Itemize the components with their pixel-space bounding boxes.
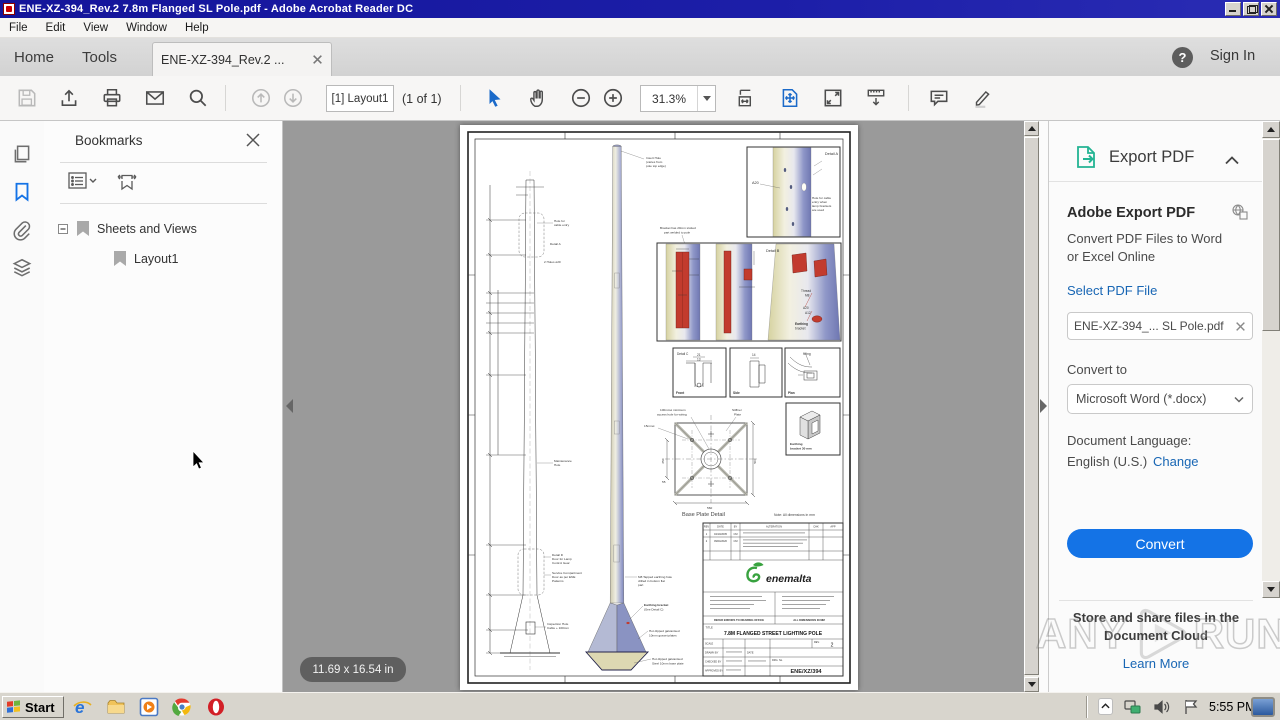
bookmark-label: Layout1 (134, 252, 178, 266)
svg-text:APPROVED BY: APPROVED BY (705, 670, 723, 673)
detail-b-box: Detail B Thread M8 A20 A12 Earthing brac… (657, 243, 841, 341)
svg-text:Earthing: Earthing (790, 442, 803, 446)
svg-text:500: 500 (753, 458, 757, 463)
svg-text:cable entry: cable entry (554, 223, 570, 227)
start-label: Start (25, 700, 55, 715)
menu-file[interactable]: File (0, 20, 37, 36)
scroll-up-icon[interactable] (1262, 121, 1280, 138)
svg-text:Cable + 100mm: Cable + 100mm (547, 626, 569, 630)
attachments-icon[interactable] (11, 219, 33, 241)
fullscreen-icon[interactable] (822, 87, 844, 109)
mouse-cursor (192, 451, 205, 470)
svg-text:Hole: Hole (554, 463, 561, 467)
dimensions-note: Note: All dimensions in mm (774, 513, 815, 517)
media-player-icon[interactable] (139, 697, 159, 717)
svg-text:Side: Side (733, 391, 740, 395)
bookmark-icon (76, 221, 90, 237)
export-pdf-header[interactable]: Export PDF (1109, 148, 1194, 167)
page-count-label: (1 of 1) (402, 85, 442, 112)
tab-document[interactable]: ENE-XZ-394_Rev.2 ... (152, 42, 332, 76)
convert-to-label: Convert to (1067, 362, 1127, 377)
menu-edit[interactable]: Edit (37, 20, 75, 36)
save-icon[interactable] (16, 87, 38, 109)
store-share-line1: Store and share files in the (1049, 610, 1263, 625)
svg-text:ALL DIMENSIONS IN MM: ALL DIMENSIONS IN MM (793, 618, 825, 622)
minimize-button[interactable] (1225, 2, 1241, 16)
convert-button[interactable]: Convert (1067, 529, 1253, 558)
svg-text:bracket: bracket (795, 327, 806, 331)
chevron-down-icon (1234, 396, 1244, 403)
acrobat-app-icon (3, 3, 15, 15)
detail-a-box: Detail A A20 Hole for cable entry when l… (747, 147, 840, 237)
window-title: ENE-XZ-394_Rev.2 7.8m Flanged SL Pole.pd… (19, 3, 413, 15)
language-value: English (U.S.) (1067, 454, 1147, 469)
document-language-label: Document Language: (1067, 433, 1191, 448)
collapse-left-panel-icon[interactable] (286, 399, 293, 413)
zoom-caret-icon[interactable] (697, 86, 715, 111)
page-size-tooltip: 11.69 x 16.54 in (300, 657, 406, 682)
svg-text:Thread: Thread (801, 289, 811, 293)
close-button[interactable] (1261, 2, 1277, 16)
tray-collapse-icon[interactable] (1098, 698, 1113, 715)
internet-explorer-icon[interactable]: e (72, 697, 92, 717)
windows-flag-icon (7, 700, 21, 713)
opera-icon[interactable] (206, 697, 226, 717)
scroll-up-icon[interactable] (1024, 121, 1039, 136)
restore-button[interactable] (1243, 2, 1259, 16)
selected-file-chip[interactable]: ENE-XZ-394_... SL Pole.pdf (1067, 312, 1253, 340)
export-pdf-panel: Export PDF Adobe Export PDF Convert PDF … (1048, 121, 1262, 692)
svg-text:fitting: fitting (803, 352, 811, 356)
bookmarks-panel: Bookmarks Sheets and Views (44, 121, 283, 692)
svg-text:Patterns: Patterns (552, 579, 564, 583)
tab-home[interactable]: Home (4, 38, 64, 76)
export-description-line1: Convert PDF Files to Word (1067, 231, 1222, 246)
panel-scrollbar[interactable] (1262, 121, 1280, 598)
svg-text:09/04/2020: 09/04/2020 (714, 539, 728, 543)
svg-text:A20: A20 (752, 181, 759, 185)
bookmark-item-sheets-and-views[interactable]: Sheets and Views (44, 217, 283, 241)
zoom-level-value: 31.3% (641, 92, 697, 106)
svg-text:21: 21 (697, 353, 701, 357)
menu-view[interactable]: View (74, 20, 117, 36)
svg-text:Detail C: Detail C (677, 352, 689, 356)
svg-text:CHK: CHK (813, 525, 819, 529)
main-area: Bookmarks Sheets and Views (0, 121, 1280, 692)
svg-text:13: 13 (697, 358, 701, 362)
svg-text:10mm gusset plates: 10mm gusset plates (649, 634, 677, 638)
highlight-pen-icon[interactable] (971, 87, 993, 109)
previous-page-icon[interactable] (250, 87, 272, 109)
share-upload-icon[interactable] (58, 87, 80, 109)
chrome-icon[interactable] (172, 697, 192, 717)
menu-bar: File Edit View Window Help (0, 18, 1280, 38)
panel-scroll-gutter (1262, 598, 1280, 692)
svg-text:Detail A: Detail A (825, 152, 839, 156)
svg-text:APP: APP (830, 525, 835, 529)
zoom-out-icon[interactable] (570, 87, 592, 109)
svg-text:DRAWN BY: DRAWN BY (705, 652, 719, 655)
comment-icon[interactable] (928, 87, 950, 109)
svg-text:Front: Front (676, 391, 685, 395)
svg-text:DRG. No.: DRG. No. (772, 659, 783, 662)
export-pdf-icon (1073, 144, 1099, 170)
drawing-number: ENE/XZ/394 (790, 669, 822, 675)
tab-tools[interactable]: Tools (72, 38, 127, 76)
tab-document-label: ENE-XZ-394_Rev.2 ... (161, 53, 312, 67)
svg-text:are used: are used (812, 208, 824, 212)
bookmark-icon (113, 251, 127, 267)
main-toolbar: [1] Layout1 (1 of 1) 31.3% (0, 76, 1280, 121)
drawing-title: 7.8M FLANGED STREET LIGHTING POLE (724, 631, 823, 637)
svg-text:pole top edge): pole top edge) (646, 164, 666, 168)
next-page-icon[interactable] (282, 87, 304, 109)
svg-text:560: 560 (707, 506, 712, 510)
pdf-page[interactable]: Hole for cable entry Detail A 2 Holes ⌀2… (460, 125, 858, 690)
svg-text:REV: REV (704, 525, 710, 529)
svg-text:Stiffner: Stiffner (732, 408, 742, 412)
bookmark-options-icon[interactable] (68, 171, 98, 196)
export-description-line2: or Excel Online (1067, 249, 1155, 264)
earthing-bracket-box: Earthing bracket 30 mm (786, 403, 840, 455)
monitor-tray-icon[interactable] (1251, 697, 1275, 717)
new-bookmark-icon[interactable] (114, 171, 140, 198)
scroll-down-icon[interactable] (1262, 581, 1280, 598)
svg-text:REFER ERRORS TO DRAWING OFFICE: REFER ERRORS TO DRAWING OFFICE (714, 618, 764, 622)
svg-text:part welded to pole: part welded to pole (664, 231, 690, 235)
change-language-link[interactable]: Change (1153, 454, 1199, 469)
svg-text:Bracket has 20mm slotted: Bracket has 20mm slotted (660, 226, 696, 230)
svg-text:CM: CM (733, 539, 737, 543)
menu-window[interactable]: Window (117, 20, 176, 36)
svg-text:bracket 30 mm: bracket 30 mm (790, 447, 812, 451)
bookmarks-panel-icon[interactable] (11, 181, 33, 203)
fit-width-icon[interactable] (736, 87, 758, 109)
svg-text:enemalta: enemalta (766, 573, 812, 585)
svg-text:A12: A12 (805, 311, 811, 315)
bookmark-item-layout1[interactable]: Layout1 (44, 247, 283, 271)
window-titlebar[interactable]: ENE-XZ-394_Rev.2 7.8m Flanged SL Pole.pd… (0, 0, 1280, 18)
start-button[interactable]: Start (2, 696, 64, 718)
select-pdf-file-link[interactable]: Select PDF File (1067, 283, 1157, 298)
svg-text:Hot dipped galvanised: Hot dipped galvanised (652, 657, 683, 661)
layers-icon[interactable] (11, 257, 33, 279)
svg-text:Earthing bracket: Earthing bracket (644, 603, 668, 607)
svg-text:ALTERATION: ALTERATION (766, 525, 782, 529)
right-panel-edge (1039, 121, 1048, 692)
help-icon[interactable]: ? (1172, 47, 1193, 68)
svg-text:Plate: Plate (734, 413, 741, 417)
taskbar: Start e 5:55 PM (0, 692, 1280, 720)
selected-file-name: ENE-XZ-394_... SL Pole.pdf (1074, 319, 1235, 333)
svg-text:A20: A20 (803, 306, 809, 310)
svg-text:M8: M8 (805, 294, 810, 298)
clock[interactable]: 5:55 PM (1209, 700, 1256, 714)
svg-text:e: e (75, 698, 84, 717)
document-area[interactable]: Hole for cable entry Detail A 2 Holes ⌀2… (283, 121, 1039, 692)
collapse-box-icon[interactable] (58, 224, 68, 234)
svg-text:250: 250 (661, 458, 665, 463)
chevron-up-icon[interactable] (1225, 152, 1239, 161)
select-tool-icon[interactable] (484, 87, 506, 109)
svg-text:access hole for wiring: access hole for wiring (657, 413, 687, 417)
bookmarks-close-icon[interactable] (244, 131, 262, 149)
svg-text:100mm⌀ minimum: 100mm⌀ minimum (660, 408, 686, 412)
format-value: Microsoft Word (*.docx) (1076, 392, 1234, 406)
svg-text:(See Detail C): (See Detail C) (644, 608, 663, 612)
svg-text:Steel 10mm base plate: Steel 10mm base plate (652, 662, 684, 666)
svg-text:Control Gear: Control Gear (552, 561, 570, 565)
search-icon[interactable] (187, 87, 209, 109)
folder-icon[interactable] (106, 697, 126, 717)
sidebar-strip (0, 121, 44, 692)
title-block: REV DATE BY ALTERATION CHK APP 1 04/10/2… (703, 523, 843, 676)
detail-c-boxes: Detail C 21 13 14 fitting Front Side Pla… (673, 348, 840, 397)
pages-globe-icon (1231, 203, 1249, 221)
svg-text:2 Holes ⌀20: 2 Holes ⌀20 (544, 260, 561, 264)
menu-help[interactable]: Help (176, 20, 218, 36)
page-thumbnails-icon[interactable] (11, 143, 33, 165)
svg-text:55: 55 (662, 480, 666, 484)
expand-right-panel-icon[interactable] (1040, 399, 1047, 413)
svg-text:DATE: DATE (717, 525, 724, 529)
store-share-line2: Document Cloud (1049, 628, 1263, 643)
sign-in-link[interactable]: Sign In (1210, 48, 1255, 64)
bookmarks-title: Bookmarks (75, 133, 143, 148)
svg-text:04/10/2005: 04/10/2005 (714, 532, 728, 536)
base-plate-caption: Base Plate Detail (682, 512, 725, 518)
measure-tool-icon[interactable] (865, 87, 887, 109)
scroll-down-icon[interactable] (1024, 677, 1039, 692)
svg-text:Detail B: Detail B (766, 249, 780, 253)
learn-more-link[interactable]: Learn More (1049, 656, 1263, 671)
svg-text:CHECKED BY: CHECKED BY (705, 661, 722, 664)
svg-text:Earthing: Earthing (795, 322, 808, 326)
hand-tool-icon[interactable] (527, 87, 549, 109)
print-icon[interactable] (101, 87, 123, 109)
svg-text:DATE: DATE (747, 652, 754, 655)
bookmark-label: Sheets and Views (97, 222, 197, 236)
svg-text:Detail A: Detail A (550, 242, 562, 246)
document-scrollbar[interactable] (1024, 121, 1039, 692)
remove-file-icon[interactable] (1235, 321, 1246, 332)
svg-text:Hot dipped galvanised: Hot dipped galvanised (649, 629, 680, 633)
volume-tray-icon[interactable] (1153, 698, 1171, 716)
svg-text:15mm⌀: 15mm⌀ (644, 424, 655, 428)
format-select[interactable]: Microsoft Word (*.docx) (1067, 384, 1253, 414)
zoom-in-icon[interactable] (602, 87, 624, 109)
pole-3d (586, 145, 648, 670)
svg-text:14: 14 (752, 353, 756, 357)
screen: ENE-XZ-394_Rev.2 7.8m Flanged SL Pole.pd… (0, 0, 1280, 720)
svg-text:part: part (638, 583, 643, 587)
fit-page-icon[interactable] (779, 87, 801, 109)
svg-text:SCALE: SCALE (705, 643, 714, 646)
svg-text:Plan: Plan (788, 391, 795, 395)
revision-number: 2 (831, 643, 834, 649)
elevation-annotations: Hole for cable entry Detail A 2 Holes ⌀2… (544, 219, 582, 630)
svg-text:REV.: REV. (814, 641, 820, 644)
svg-text:CM: CM (733, 532, 737, 536)
email-icon[interactable] (144, 87, 166, 109)
adobe-export-heading: Adobe Export PDF (1067, 205, 1195, 221)
tab-close-icon[interactable] (312, 54, 323, 65)
pole-elevation-2d (486, 171, 560, 670)
page-layout-input[interactable]: [1] Layout1 (326, 85, 394, 112)
tab-bar: Home Tools ENE-XZ-394_Rev.2 ... (0, 38, 1280, 76)
zoom-level-select[interactable]: 31.3% (640, 85, 716, 112)
security-flag-tray-icon[interactable] (1182, 698, 1200, 716)
svg-text:BY: BY (734, 525, 738, 529)
svg-text:TITLE: TITLE (706, 626, 714, 630)
network-tray-icon[interactable] (1124, 698, 1142, 716)
